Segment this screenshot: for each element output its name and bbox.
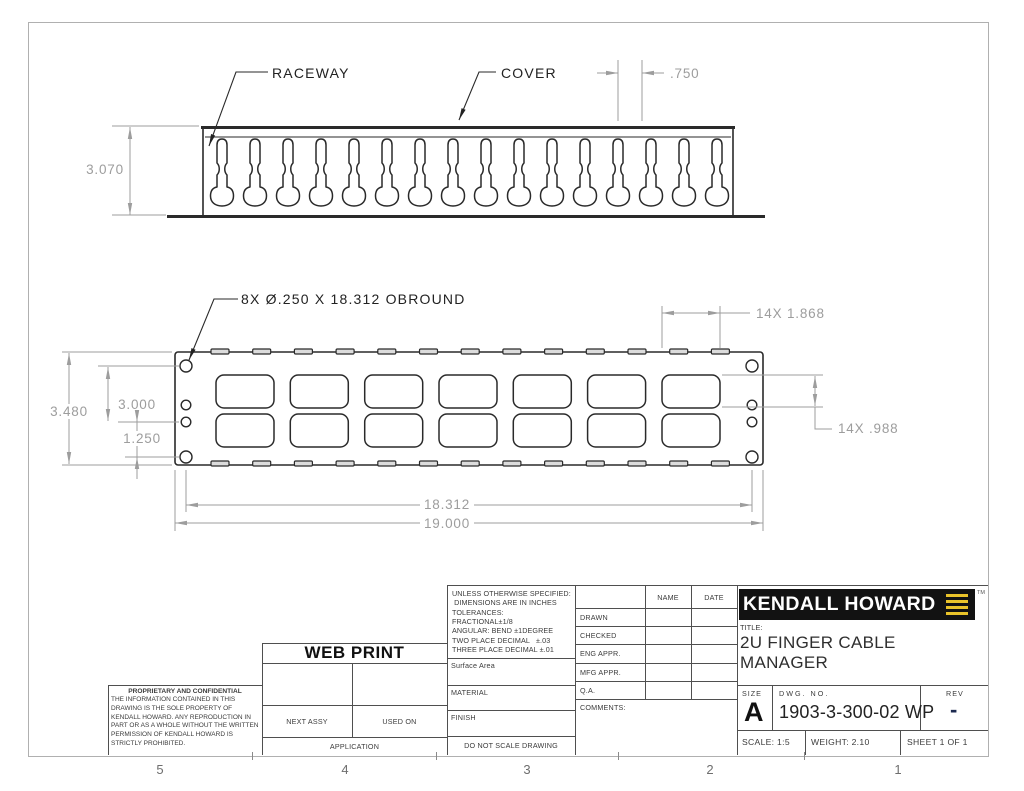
zone-number: 3 [517, 762, 537, 777]
titleblock-line [575, 608, 737, 609]
kendall-howard-logo: KENDALL HOWARD [739, 589, 975, 620]
finger-slot [442, 139, 465, 206]
dim-raceway-height: 3.070 [86, 162, 124, 177]
zone-tick [436, 752, 437, 760]
used-on-label: USED ON [352, 705, 447, 737]
finger-slot [409, 139, 432, 206]
proprietary-title: PROPRIETARY AND CONFIDENTIAL [112, 688, 258, 695]
finger-slot [343, 139, 366, 206]
logo-text: KENDALL HOWARD [739, 593, 946, 616]
hole-callout: 8X Ø.250 X 18.312 OBROUND [241, 291, 466, 307]
titleblock-line [575, 585, 576, 755]
finger-slot [475, 139, 498, 206]
finger-tip-tab [586, 349, 604, 354]
titleblock-line [900, 730, 901, 755]
dim-opening-height: 14X .988 [838, 421, 898, 436]
finger-tip-tab [378, 349, 396, 354]
finger-tip-tab [711, 461, 729, 466]
titleblock-line [575, 681, 737, 682]
finger-tip-tab [420, 461, 438, 466]
finger-tip-tab [503, 349, 521, 354]
finger-slot [211, 139, 234, 206]
zone-number: 5 [150, 762, 170, 777]
finger-tip-tab [503, 461, 521, 466]
cable-opening [588, 414, 646, 447]
titleblock-line [447, 585, 988, 586]
finger-tip-tab [586, 461, 604, 466]
finger-slot [607, 139, 630, 206]
cable-opening [662, 414, 720, 447]
titleblock-line [447, 685, 575, 686]
raceway-label: RACEWAY [272, 65, 350, 81]
approval-row-label: DRAWN [580, 613, 608, 622]
zone-tick [618, 752, 619, 760]
cable-opening [513, 414, 571, 447]
material-label: MATERIAL [451, 688, 488, 697]
cable-opening [439, 414, 497, 447]
cable-opening [365, 414, 423, 447]
dim-overall-width: 19.000 [424, 516, 470, 531]
trademark-symbol: TM [977, 590, 985, 596]
finger-tip-tab [294, 461, 312, 466]
tolerance-notes: UNLESS OTHERWISE SPECIFIED: DIMENSIONS A… [452, 589, 574, 655]
titleblock-line [447, 736, 575, 737]
title-label: TITLE: [740, 623, 763, 632]
titleblock-line [447, 658, 575, 659]
finger-tip-tab [461, 349, 479, 354]
cover-label: COVER [501, 65, 557, 81]
approval-row-label: Q.A. [580, 686, 595, 695]
titleblock-line [575, 644, 737, 645]
zone-number: 1 [888, 762, 908, 777]
titleblock-line [772, 685, 773, 730]
zone-tick [804, 752, 805, 760]
titleblock-line [575, 699, 737, 700]
finger-tip-tab [253, 461, 271, 466]
finger-slot [673, 139, 696, 206]
dim-opening-width: 14X 1.868 [756, 306, 825, 321]
finger-tip-tab [461, 461, 479, 466]
titleblock-line [262, 663, 447, 664]
cable-opening [216, 414, 274, 447]
finger-slot [310, 139, 333, 206]
approval-row-label: ENG APPR. [580, 649, 621, 658]
proprietary-body: THE INFORMATION CONTAINED IN THIS DRAWIN… [111, 696, 260, 749]
finger-tip-tab [545, 461, 563, 466]
dwg-no-label: DWG. NO. [779, 689, 829, 698]
titleblock-line [575, 626, 737, 627]
cable-opening [290, 414, 348, 447]
finger-tip-tab [420, 349, 438, 354]
cable-opening [662, 375, 720, 408]
finger-tip-tab [628, 349, 646, 354]
cable-opening [290, 375, 348, 408]
sheet-value: SHEET 1 OF 1 [907, 737, 968, 747]
finger-tip-tab [378, 461, 396, 466]
cable-opening [513, 375, 571, 408]
finger-tip-tab [711, 349, 729, 354]
finger-slot [541, 139, 564, 206]
name-column-header: NAME [645, 587, 691, 607]
zone-tick [252, 752, 253, 760]
zone-number: 4 [335, 762, 355, 777]
finger-tip-tab [294, 349, 312, 354]
titleblock-line [737, 585, 738, 755]
comments-label: COMMENTS: [580, 703, 626, 712]
finger-tip-tab [545, 349, 563, 354]
finger-tip-tab [670, 461, 688, 466]
approval-row-label: CHECKED [580, 631, 617, 640]
dim-finger-pitch: .750 [670, 66, 699, 81]
finger-tip-tab [628, 461, 646, 466]
front-view: 8X Ø.250 X 18.312 OBROUND 3.480 3.000 1.… [46, 291, 898, 531]
dwg-no-value: 1903-3-300-02 WP [779, 702, 934, 723]
titleblock-line [447, 710, 575, 711]
approval-row-label: MFG APPR. [580, 668, 621, 677]
finger-tip-tab [336, 349, 354, 354]
finger-tip-tab [211, 461, 229, 466]
titleblock-line [447, 585, 448, 755]
scale-value: SCALE: 1:5 [742, 737, 790, 747]
drawing-title: 2U FINGER CABLE MANAGER [740, 633, 980, 673]
zone-number: 2 [700, 762, 720, 777]
cable-opening [588, 375, 646, 408]
dim-hole-gap: 1.250 [123, 431, 161, 446]
finger-tip-tab [211, 349, 229, 354]
next-assy-label: NEXT ASSY [262, 705, 352, 737]
do-not-scale-label: DO NOT SCALE DRAWING [447, 738, 575, 753]
finger-slot [376, 139, 399, 206]
finger-slot [508, 139, 531, 206]
titleblock-line [737, 730, 988, 731]
finger-tip-tab [670, 349, 688, 354]
cable-openings [216, 375, 720, 447]
logo-bars-icon [946, 594, 968, 616]
surface-area-label: Surface Area [451, 661, 495, 670]
cable-opening [365, 375, 423, 408]
cover-leader [459, 72, 496, 120]
cable-opening [216, 375, 274, 408]
titleblock-line [575, 663, 737, 664]
finger-tip-tab [253, 349, 271, 354]
finger-slots [211, 139, 729, 206]
finger-slot [574, 139, 597, 206]
titleblock-line [108, 685, 262, 686]
web-print-stamp: WEB PRINT [262, 643, 447, 663]
finger-tip-tab [336, 461, 354, 466]
dim-hole-span-h: 18.312 [424, 497, 470, 512]
size-value: A [744, 697, 764, 728]
titleblock-line [108, 685, 109, 755]
finger-slot [706, 139, 729, 206]
date-column-header: DATE [691, 587, 737, 607]
finger-slot [244, 139, 267, 206]
application-label: APPLICATION [262, 737, 447, 755]
dim-hole-span-v: 3.000 [118, 397, 156, 412]
finger-slot [277, 139, 300, 206]
top-profile-view: RACEWAY COVER .750 3.070 [82, 60, 765, 217]
finish-label: FINISH [451, 713, 476, 722]
rev-value: - [950, 705, 957, 715]
raceway-leader [209, 72, 268, 146]
weight-value: WEIGHT: 2.10 [811, 737, 870, 747]
titleblock-line [805, 730, 806, 755]
finger-slot [640, 139, 663, 206]
titleblock-line [737, 685, 988, 686]
cable-opening [439, 375, 497, 408]
dim-overall-height: 3.480 [50, 404, 88, 419]
drawing-sheet: RACEWAY COVER .750 3.070 [0, 0, 1024, 791]
